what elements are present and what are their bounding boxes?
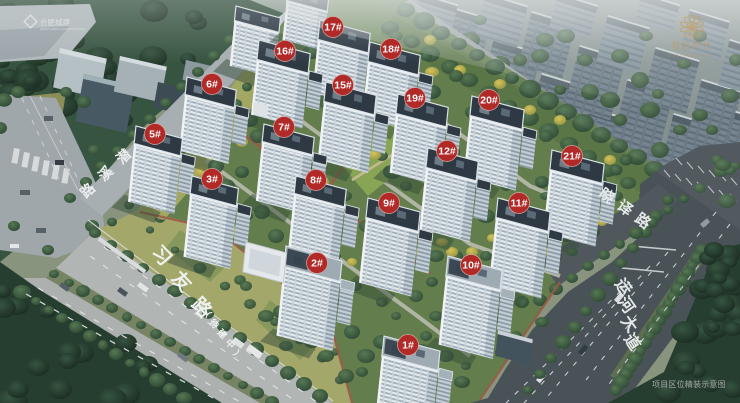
svg-text:项目区位精装示意图: 项目区位精装示意图 [652,379,726,389]
